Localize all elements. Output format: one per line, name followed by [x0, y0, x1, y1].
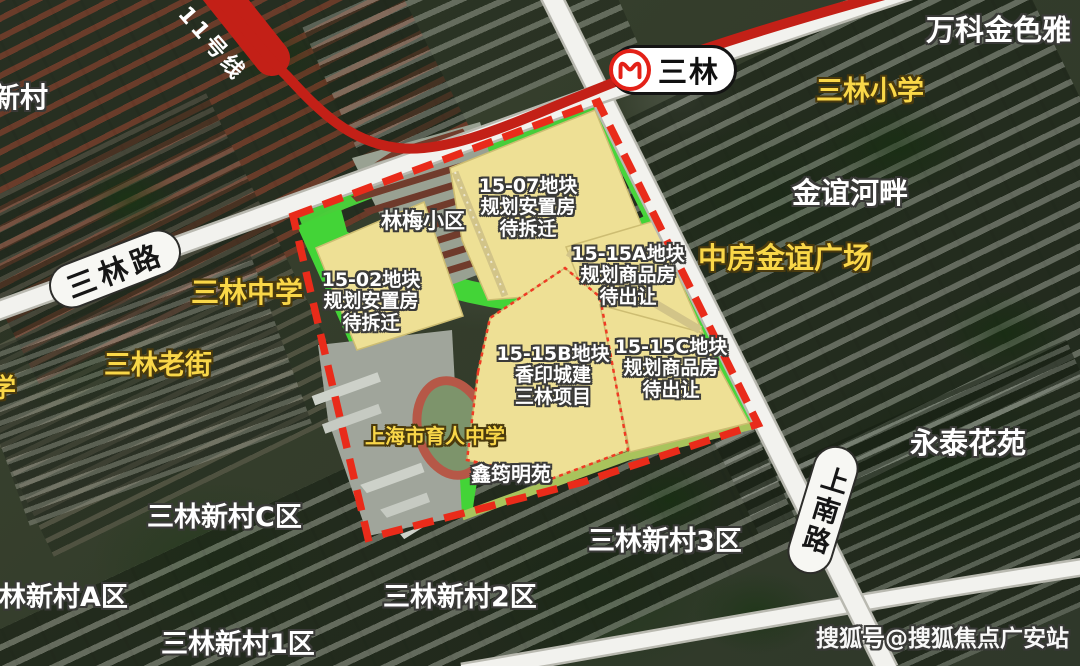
place-label-wanke: 万科金色雅 [926, 16, 1071, 45]
satellite-map: 11号线 三林 三林路 上南路 新村 万科金色雅 三林小学 金谊河畔 三林中学 … [0, 0, 1080, 666]
place-label-jinyi-hepan: 金谊河畔 [792, 179, 908, 208]
place-label-xincun: 新村 [0, 84, 48, 112]
parcel-label-15-15A: 15-15A地块 规划商品房 待出让 [553, 244, 703, 308]
parcel-label-15-02: 15-02地块 规划安置房 待拆迁 [296, 270, 446, 334]
place-label-yongtai: 永泰花苑 [910, 429, 1026, 458]
place-label-xincun-1: 三林新村1区 [161, 631, 315, 658]
watermark: 搜狐号@搜狐焦点广安站 [816, 628, 1069, 651]
place-label-xincun-c: 三林新村C区 [147, 504, 302, 531]
place-label-sanlin-middle: 三林中学 [191, 279, 303, 307]
place-label-sanlin-primary: 三林小学 [816, 78, 924, 105]
place-label-sanlin-laojie: 三林老街 [104, 352, 212, 379]
parcel-label-15-07: 15-07地块 规划安置房 待拆迁 [453, 176, 603, 240]
place-label-yuren-school: 上海市育人中学 [365, 426, 505, 446]
place-label-xinjun: 鑫筠明苑 [471, 464, 551, 484]
place-label-xincun-2: 三林新村2区 [383, 584, 537, 611]
station-name: 三林 [658, 49, 720, 91]
place-label-partial-xue: 学 [0, 376, 16, 402]
metro-station-badge: 三林 [610, 45, 737, 95]
place-label-xincun-a: 三林新村A区 [0, 584, 128, 611]
parcel-label-15-15C: 15-15C地块 规划商品房 待出让 [596, 337, 746, 401]
place-label-zhongfang: 中房金谊广场 [698, 244, 872, 273]
place-label-xincun-3: 三林新村3区 [588, 528, 742, 555]
shanghai-metro-logo-icon [609, 49, 651, 91]
